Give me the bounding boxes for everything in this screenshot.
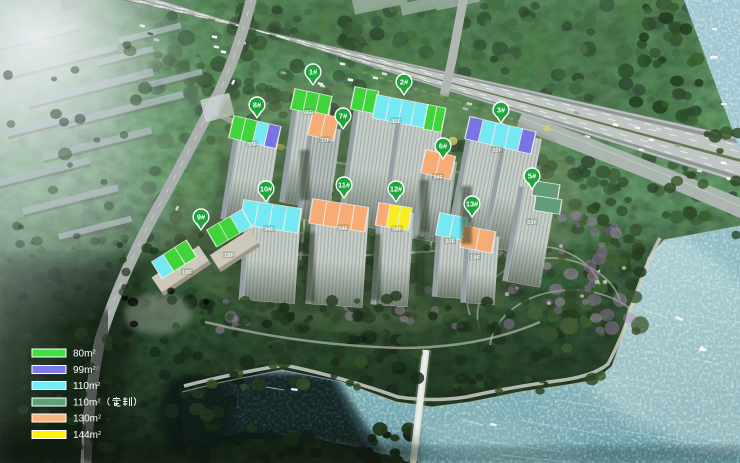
svg-text:18F: 18F xyxy=(224,253,234,259)
svg-text:144m2: 144m2 xyxy=(73,430,101,441)
svg-text:35F: 35F xyxy=(492,148,502,154)
svg-text:2#: 2# xyxy=(400,78,408,87)
svg-text:30F: 30F xyxy=(247,142,257,148)
svg-text:34F: 34F xyxy=(433,175,443,181)
svg-text:110m2: 110m2 xyxy=(73,381,101,392)
svg-text:28F: 28F xyxy=(303,110,313,116)
svg-text:80m2: 80m2 xyxy=(73,349,96,360)
svg-text:30F: 30F xyxy=(445,239,455,245)
svg-text:1#: 1# xyxy=(309,68,317,77)
svg-text:34F: 34F xyxy=(392,227,402,233)
svg-text:34F: 34F xyxy=(338,226,348,232)
svg-text:99m2: 99m2 xyxy=(73,365,96,376)
svg-text:5#: 5# xyxy=(528,172,536,181)
svg-text:32F: 32F xyxy=(320,138,330,144)
svg-text:33F: 33F xyxy=(527,220,537,226)
svg-text:11#: 11# xyxy=(338,181,350,190)
svg-text:9#: 9# xyxy=(197,213,205,222)
svg-text:8#: 8# xyxy=(253,101,261,110)
svg-text:35F: 35F xyxy=(391,119,401,125)
svg-text:130m2: 130m2 xyxy=(73,414,101,425)
svg-text:13#: 13# xyxy=(466,200,478,209)
svg-text:6#: 6# xyxy=(439,142,447,151)
svg-text:7#: 7# xyxy=(339,112,347,121)
svg-text:10#: 10# xyxy=(260,185,272,194)
svg-text:18F: 18F xyxy=(182,270,192,276)
svg-text:3#: 3# xyxy=(497,106,505,115)
svg-text:19F: 19F xyxy=(470,255,480,261)
svg-text:110m2: 110m2 xyxy=(73,398,101,409)
svg-text:12#: 12# xyxy=(390,185,402,194)
